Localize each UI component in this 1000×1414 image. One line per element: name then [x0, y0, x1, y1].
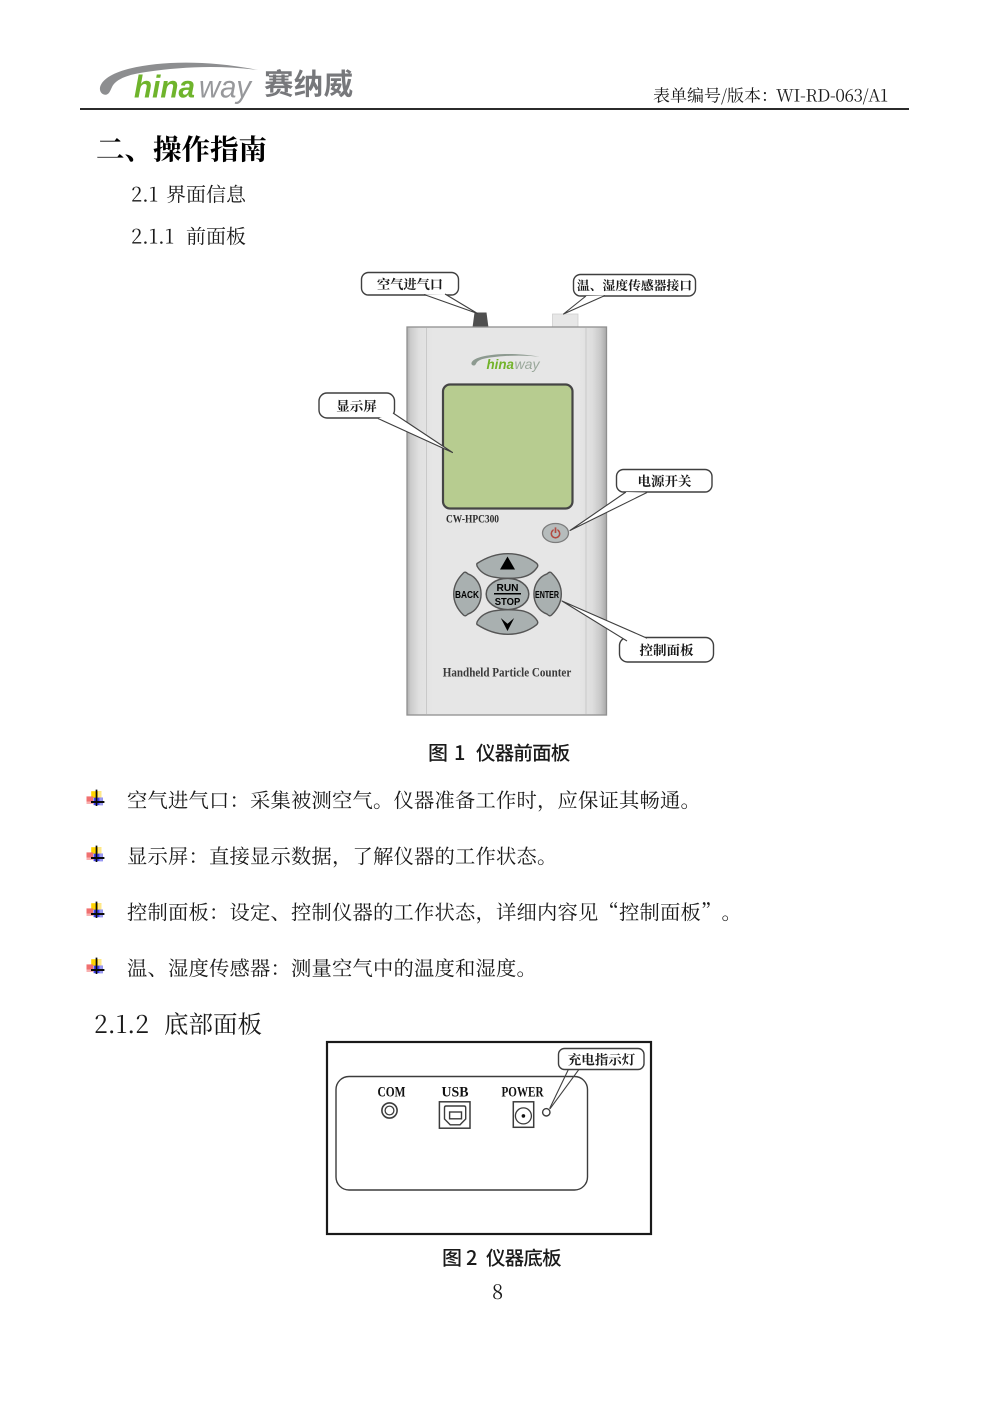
svg-text:COM: COM [378, 1085, 406, 1101]
svg-text:STOP: STOP [495, 596, 521, 608]
svg-text:BACK: BACK [455, 589, 479, 601]
svg-text:USB: USB [442, 1085, 469, 1101]
svg-text:CW-HPC300: CW-HPC300 [446, 512, 499, 526]
svg-text:hina: hina [487, 356, 515, 372]
svg-text:ENTER: ENTER [535, 589, 559, 601]
svg-text:way: way [199, 69, 253, 105]
svg-text:way: way [515, 356, 541, 372]
svg-text:Handheld Particle Counter: Handheld Particle Counter [443, 666, 572, 680]
svg-text:POWER: POWER [502, 1085, 544, 1101]
svg-text:RUN: RUN [497, 582, 519, 594]
svg-text:hina: hina [134, 69, 195, 105]
